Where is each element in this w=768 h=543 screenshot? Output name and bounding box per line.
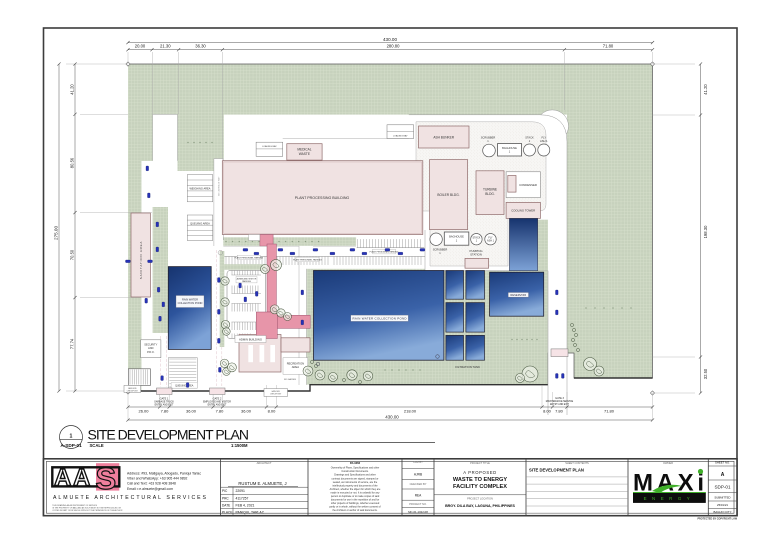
svg-text:SHEET NO.: SHEET NO. <box>715 461 730 465</box>
svg-text:WEIGHING AREA: WEIGHING AREA <box>189 187 210 191</box>
svg-text:ENTRY AND EXIT: ENTRY AND EXIT <box>208 404 227 407</box>
svg-text:PLACE: PLACE <box>222 511 232 515</box>
svg-text:COOLING TOWER: COOLING TOWER <box>511 209 535 213</box>
svg-text:ALMUETE ARCHITECTURAL SERVICES: ALMUETE ARCHITECTURAL SERVICES <box>53 495 207 501</box>
svg-text:BOILER BLDG.: BOILER BLDG. <box>437 193 459 197</box>
svg-text:FACILITY COMPLEX: FACILITY COMPLEX <box>453 484 507 490</box>
svg-text:MAINTENANCE SERVICE: MAINTENANCE SERVICE <box>546 400 574 403</box>
svg-text:SCALE: SCALE <box>90 443 104 448</box>
svg-text:AJRB: AJRB <box>414 473 422 477</box>
svg-text:Call and Text: +63 928 408 384: Call and Text: +63 928 408 3848 <box>127 482 176 486</box>
svg-text:CHECKPOINT: CHECKPOINT <box>127 390 138 392</box>
svg-text:BRGY. DILA BAY, LAGUNA, PHILIP: BRGY. DILA BAY, LAGUNA, PHILIPPINES <box>445 504 515 508</box>
svg-text:6M CARRIAGE WAY: 6M CARRIAGE WAY <box>218 176 221 196</box>
svg-text:77.74: 77.74 <box>70 338 75 349</box>
svg-text:25/01/21: 25/01/21 <box>717 503 728 507</box>
svg-text:WASTE: WASTE <box>299 152 310 156</box>
svg-text:RECREATION: RECREATION <box>287 362 304 366</box>
svg-text:MC-01-1022-08: MC-01-1022-08 <box>408 510 428 514</box>
svg-text:BLDG.: BLDG. <box>485 192 495 196</box>
svg-text:36.00: 36.00 <box>186 409 197 414</box>
svg-text:LOADING BAY: LOADING BAY <box>393 134 408 137</box>
svg-text:PLANT PERSONNEL PARKING: PLANT PERSONNEL PARKING <box>293 259 322 262</box>
svg-text:GATE 3: GATE 3 <box>555 397 564 400</box>
svg-text:SECURITY: SECURITY <box>144 343 157 347</box>
svg-text:7.80: 7.80 <box>555 409 564 414</box>
svg-text:22091: 22091 <box>236 489 246 493</box>
svg-text:PROJECT NO.: PROJECT NO. <box>409 502 427 506</box>
svg-text:PARKING: PARKING <box>242 280 251 283</box>
svg-text:8.00: 8.00 <box>268 409 277 414</box>
svg-text:SUBMITTED: SUBMITTED <box>714 496 730 500</box>
svg-text:AREA: AREA <box>292 365 300 369</box>
svg-text:71.80: 71.80 <box>603 44 614 49</box>
svg-text:Architect, whether the object: Architect, whether the object for which … <box>330 488 381 491</box>
svg-text:SANITATION AREA: SANITATION AREA <box>139 241 143 279</box>
svg-text:275.00: 275.00 <box>54 226 59 240</box>
svg-text:PLANT PERSONNEL PARKING: PLANT PERSONNEL PARKING <box>234 257 263 260</box>
svg-text:PIC: PIC <box>222 489 228 493</box>
svg-text:36.30: 36.30 <box>195 44 206 49</box>
svg-text:other projects of buildings, w: other projects of buildings, whether exe… <box>331 502 380 505</box>
svg-text:8.00: 8.00 <box>543 409 552 414</box>
svg-text:21.30: 21.30 <box>160 44 171 49</box>
svg-text:WASTE TO ENERGY: WASTE TO ENERGY <box>453 477 508 483</box>
svg-text:ENTRY AND EXIT: ENTRY AND EXIT <box>550 403 569 406</box>
svg-text:the Architect or author of sai: the Architect or author of said document… <box>333 509 378 512</box>
svg-text:EMPLOYEE AND VISITOR: EMPLOYEE AND VISITOR <box>203 401 231 404</box>
svg-text:SHEET CONTENTS: SHEET CONTENTS <box>565 461 589 465</box>
svg-text:SDP-01: SDP-01 <box>714 485 731 490</box>
svg-text:person to duplicate or to make: person to duplicate or to make copies of… <box>331 495 380 498</box>
svg-text:STATION: STATION <box>470 253 482 257</box>
svg-text:A PROPOSED: A PROPOSED <box>463 470 496 475</box>
svg-text:198.30: 198.30 <box>703 225 708 238</box>
svg-text:Drawings and Specifications an: Drawings and Specifications and other <box>334 474 376 477</box>
svg-text:COLLECTION POND: COLLECTION POND <box>178 301 203 305</box>
svg-text:BAGHOUSE: BAGHOUSE <box>502 146 517 150</box>
svg-text:CHECKPOINT: CHECKPOINT <box>270 393 281 395</box>
svg-text:Construction Documents.: Construction Documents. <box>341 470 369 473</box>
svg-text:41.20: 41.20 <box>70 84 75 95</box>
svg-text:80.56: 80.56 <box>70 157 75 168</box>
svg-text:32.50: 32.50 <box>703 368 708 379</box>
svg-text:BIO GARDEN: BIO GARDEN <box>284 378 297 381</box>
svg-text:RAIN WATER: RAIN WATER <box>182 297 198 301</box>
svg-text:GARBAGE TRUCK: GARBAGE TRUCK <box>154 401 174 404</box>
svg-text:COPIED IN PART OR IN WHOL: COPIED IN PART OR IN WHOLE WITHOUT THE P… <box>52 509 123 512</box>
svg-text:OWNER: OWNER <box>663 461 673 465</box>
svg-text:GATE 2: GATE 2 <box>213 398 222 401</box>
svg-text:Ownership of Plans, Specificat: Ownership of Plans, Specifications and o… <box>331 467 380 470</box>
svg-text:PROJECT LOCATION: PROJECT LOCATION <box>467 497 493 501</box>
svg-text:Email: r.e.almuete@gmail.com: Email: r.e.almuete@gmail.com <box>127 487 173 491</box>
svg-text:71.80: 71.80 <box>604 409 615 414</box>
svg-text:IS THE PROPERTY OF AAS, A: IS THE PROPERTY OF AAS, AND AS SUCH MUST… <box>52 506 121 509</box>
svg-text:1: 1 <box>70 433 73 439</box>
svg-text:BAGUIO CITY: BAGUIO CITY <box>713 510 731 514</box>
svg-text:PROJECT TITLE: PROJECT TITLE <box>470 461 490 465</box>
svg-text:430.00: 430.00 <box>385 414 399 419</box>
svg-text:sealed, as instruments of serv: sealed, as instruments of service, are t… <box>333 481 378 484</box>
svg-text:PLANT PROCESSING BUILDING: PLANT PROCESSING BUILDING <box>295 196 350 200</box>
svg-text:ASH 1: ASH 1 <box>540 139 548 143</box>
svg-text:ADMIN BUILDING: ADMIN BUILDING <box>239 337 262 341</box>
svg-text:MEDICAL: MEDICAL <box>297 148 311 152</box>
svg-text:218.00: 218.00 <box>404 409 417 414</box>
svg-text:26.00: 26.00 <box>138 409 149 414</box>
svg-text:A: A <box>54 465 71 492</box>
svg-text:CAD BY: CAD BY <box>413 460 423 464</box>
svg-text:QUEUING AREA: QUEUING AREA <box>175 385 194 388</box>
svg-text:contract documents are signed,: contract documents are signed, stamped o… <box>332 477 379 480</box>
svg-text:AND: AND <box>148 346 154 350</box>
svg-text:Viber and WhatsApp: +63 905 44: Viber and WhatsApp: +63 905 444 9892 <box>127 477 187 481</box>
svg-text:ARCHITECT: ARCHITECT <box>257 461 272 465</box>
svg-text:RESERVOIR: RESERVOIR <box>510 293 526 297</box>
svg-text:7.80: 7.80 <box>216 409 225 414</box>
svg-text:partly or in whole, without th: partly or in whole, without the written … <box>329 506 381 509</box>
svg-text:A-SDP-01: A-SDP-01 <box>60 443 82 448</box>
svg-text:ASH 1: ASH 1 <box>487 240 495 243</box>
svg-text:20.00: 20.00 <box>135 44 146 49</box>
svg-text:RAIN WATER COLLECTION POND: RAIN WATER COLLECTION POND <box>353 317 407 321</box>
svg-text:ASH BUNKER: ASH BUNKER <box>433 135 454 139</box>
svg-text:280.80: 280.80 <box>387 44 400 49</box>
svg-text:Address: #93, Matigaya, Abogad: Address: #93, Matigaya, Abogado, Paniqui… <box>127 471 201 475</box>
svg-text:DATE: DATE <box>222 504 230 508</box>
svg-text:PANIQUI, TARLAC: PANIQUI, TARLAC <box>236 511 265 515</box>
svg-text:RA 9266: RA 9266 <box>350 461 361 465</box>
svg-text:ENTRY AND EXIT: ENTRY AND EXIT <box>155 404 174 407</box>
svg-text:430.00: 430.00 <box>383 37 397 42</box>
svg-text:P.R.O.: P.R.O. <box>147 350 155 354</box>
svg-text:documents for use in the repet: documents for use in the repetition of a… <box>331 499 380 502</box>
svg-text:PRC: PRC <box>222 496 229 500</box>
svg-text:SITE DEVELOPMENT PLAN: SITE DEVELOPMENT PLAN <box>88 427 250 443</box>
svg-text:made is executed or not. It is: made is executed or not. It is unlawful … <box>331 491 381 494</box>
svg-text:FEB 4, 2021: FEB 4, 2021 <box>236 504 255 508</box>
svg-text:36.00: 36.00 <box>241 409 252 414</box>
svg-text:ENERGY: ENERGY <box>644 496 696 501</box>
svg-text:ADMIN AND VISITOR: ADMIN AND VISITOR <box>237 277 257 280</box>
svg-text:LOADING BAY: LOADING BAY <box>262 145 277 148</box>
svg-text:REA: REA <box>415 494 422 498</box>
svg-text:A: A <box>721 472 725 478</box>
svg-text:GATE 1: GATE 1 <box>160 398 169 401</box>
svg-text:THIS DRAWING AS AN INSTRUM: THIS DRAWING AS AN INSTRUMENT OF SERVICE <box>52 504 97 507</box>
svg-text:S: S <box>96 461 117 496</box>
svg-text:A: A <box>73 465 90 492</box>
svg-text:1:1500M: 1:1500M <box>231 443 248 448</box>
svg-text:4117257: 4117257 <box>236 496 249 500</box>
svg-text:QUEUING AREA: QUEUING AREA <box>190 222 210 226</box>
svg-text:SITE DEVELOPMENT PLAN: SITE DEVELOPMENT PLAN <box>529 468 584 473</box>
svg-text:intellectual property and docu: intellectual property and documents of t… <box>332 484 378 487</box>
svg-text:BAGHOUSE: BAGHOUSE <box>449 235 464 239</box>
svg-text:70.50: 70.50 <box>70 249 75 260</box>
svg-text:7.80: 7.80 <box>161 409 170 414</box>
svg-text:RUSTUM E. ALMUETE, J: RUSTUM E. ALMUETE, J <box>238 481 286 486</box>
svg-text:41.20: 41.20 <box>703 84 708 95</box>
svg-text:FILTRATION TANK: FILTRATION TANK <box>455 365 480 369</box>
svg-text:CONDENSER: CONDENSER <box>519 183 537 187</box>
svg-text:PLANT PERSONNEL PARKING: PLANT PERSONNEL PARKING <box>370 251 399 254</box>
svg-text:CHECKED BY: CHECKED BY <box>410 482 427 486</box>
svg-text:PROTECTED BY COPYRIGHT LAW: PROTECTED BY COPYRIGHT LAW <box>697 518 737 521</box>
